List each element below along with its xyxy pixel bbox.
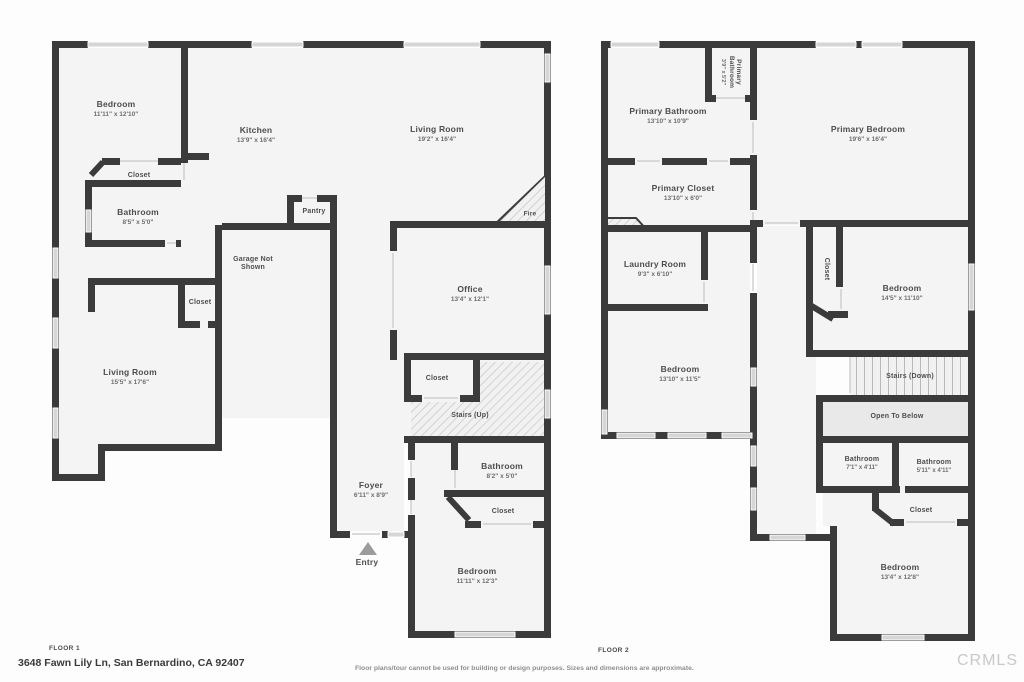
window-marker [668,433,706,438]
room-label-bathroom-a: Bathroom 7'1" x 4'11" [845,456,880,472]
room-label-pantry: Pantry [303,208,326,216]
floor-area [757,350,816,535]
floorplan-canvas [0,0,1024,682]
floor-area [59,227,215,451]
wall-segment [806,350,968,357]
wall-segment [662,158,707,165]
wall-segment [480,41,551,48]
wall-segment [750,293,757,311]
room-label-stairs-up: Stairs (Up) [451,412,489,420]
wall-segment [836,220,843,287]
wall-segment [968,41,975,641]
floorplan-page: Bedroom 11'11" x 12'10" Kitchen 13'9" x … [0,0,1024,682]
room-label-bedroom-top: Bedroom 11'11" x 12'10" [94,100,139,118]
room-label-closet-low: Closet [910,507,933,515]
wall-segment [408,443,415,460]
wall-segment [287,195,302,202]
window-marker [751,488,756,510]
room-label-primary-closet: Primary Closet 13'10" x 6'0" [652,184,715,202]
room-label-kitchen: Kitchen 13'9" x 16'4" [237,126,275,144]
room-label-bathroom-top: Bathroom 8'5" x 5'0" [117,208,159,226]
wall-segment [750,232,757,263]
window-marker [545,390,550,418]
wall-segment [158,158,181,165]
wall-segment [601,41,608,439]
wall-segment [451,440,458,470]
wall-segment [52,474,105,481]
wall-segment [544,41,551,638]
room-label-living-room-2: Living Room 15'5" x 17'6" [103,368,157,386]
floor-area [411,440,544,631]
wall-segment [533,521,551,528]
wall-segment [800,220,975,227]
wall-segment [892,443,899,493]
wall-segment [444,490,551,497]
wall-segment [659,41,816,48]
room-label-laundry: Laundry Room 9'3" x 6'10" [624,260,686,278]
room-label-primary-bathroom-small: Primary Bathroom 3'9" x 5'2" [720,56,742,88]
wall-segment [178,321,200,328]
room-label-open-to-below: Open To Below [870,413,923,421]
room-label-bathroom-b: Bathroom 5'11" x 4'11" [917,459,952,475]
room-label-office: Office 13'4" x 12'1" [451,285,489,303]
property-address: 3648 Fawn Lily Ln, San Bernardino, CA 92… [18,657,245,669]
floor-area [59,451,98,474]
wall-segment [222,223,330,230]
wall-segment [176,240,181,247]
wall-segment [601,304,708,311]
window-marker [388,532,404,537]
wall-segment [816,395,968,402]
wall-segment [404,395,422,402]
wall-segment [830,526,837,641]
wall-segment [816,395,823,493]
wall-segment [902,41,975,48]
wall-segment [856,41,862,48]
window-marker [751,446,756,466]
room-label-foyer: Foyer 6'11" x 8'9" [354,481,388,499]
floor-area [757,226,968,350]
wall-segment [705,41,712,98]
room-label-stairs-down: Stairs (Down) [886,373,934,381]
room-label-closet-hall: Closet [189,299,212,307]
window-marker [722,433,752,438]
room-label-bedroom-low: Bedroom 13'4" x 12'8" [881,563,920,581]
wall-segment [404,436,551,443]
room-label-garage: Garage Not Shown [233,256,273,272]
wall-segment [98,444,222,451]
wall-segment [404,353,411,402]
window-marker [751,368,756,386]
wall-segment [85,240,165,247]
room-label-closet-lower: Closet [492,508,515,516]
wall-segment [730,158,757,165]
wall-segment [601,158,635,165]
window-marker [969,264,974,310]
window-marker [86,210,91,232]
window-marker [53,318,58,348]
window-marker [88,42,148,47]
wall-segment [750,41,757,120]
fireplace-label: Fire [524,210,537,217]
wall-segment [85,180,181,187]
wall-segment [601,225,757,232]
room-label-primary-bedroom: Primary Bedroom 19'6" x 16'4" [831,125,905,143]
wall-segment [88,278,95,312]
wall-segment [390,330,397,360]
window-marker [545,54,550,82]
wall-segment [705,95,716,102]
window-marker [455,632,515,637]
window-marker [53,248,58,278]
wall-segment [465,521,481,528]
window-marker [816,42,856,47]
room-label-primary-bathroom: Primary Bathroom 13'10" x 10'9" [629,107,706,125]
wall-segment [382,531,388,538]
wall-segment [181,41,188,163]
wall-segment [701,232,708,280]
wall-segment [317,195,330,202]
room-label-living-room: Living Room 19'2" x 16'4" [410,125,464,143]
room-label-closet-mid: Closet [822,258,830,281]
wall-segment [806,220,813,355]
window-marker [404,42,480,47]
entry-arrow-icon [359,542,377,555]
wall-segment [473,360,480,402]
crmls-logo: CRMLS [957,652,1018,670]
window-marker [862,42,902,47]
window-marker [602,410,607,434]
wall-segment [957,519,968,526]
wall-segment [148,41,252,48]
wall-segment [404,353,551,360]
wall-segment [330,531,350,538]
floor2-tag: FLOOR 2 [598,647,629,654]
room-label-closet-stairs: Closet [426,375,449,383]
wall-segment [330,195,337,538]
disclaimer-text: Floor plans/tour cannot be used for buil… [355,665,694,672]
wall-segment [215,225,222,451]
window-marker [882,635,924,640]
window-marker [252,42,303,47]
room-label-bedroom-left: Bedroom 13'10" x 11'5" [659,365,700,383]
window-marker [617,433,655,438]
wall-segment [750,220,763,227]
wall-segment [404,531,415,538]
wall-segment [816,436,968,443]
wall-segment [390,221,397,251]
room-label-bedroom-lower: Bedroom 11'11" x 12'3" [456,567,497,585]
entry-label: Entry [356,558,379,568]
wall-segment [208,321,222,328]
wall-segment [905,486,975,493]
wall-segment [408,478,415,500]
wall-segment [303,41,404,48]
window-marker [53,408,58,438]
room-label-bedroom-mid: Bedroom 14'5" x 11'10" [881,284,922,302]
wall-segment [181,153,209,160]
window-marker [770,535,805,540]
wall-segment [816,486,900,493]
room-label-bathroom-lower: Bathroom 8'2" x 5'0" [481,462,523,480]
window-marker [545,266,550,314]
window-marker [611,42,659,47]
room-label-closet-bedroom: Closet [128,172,151,180]
floor1-tag: FLOOR 1 [49,645,80,652]
wall-segment [395,221,551,228]
wall-segment [88,278,222,285]
